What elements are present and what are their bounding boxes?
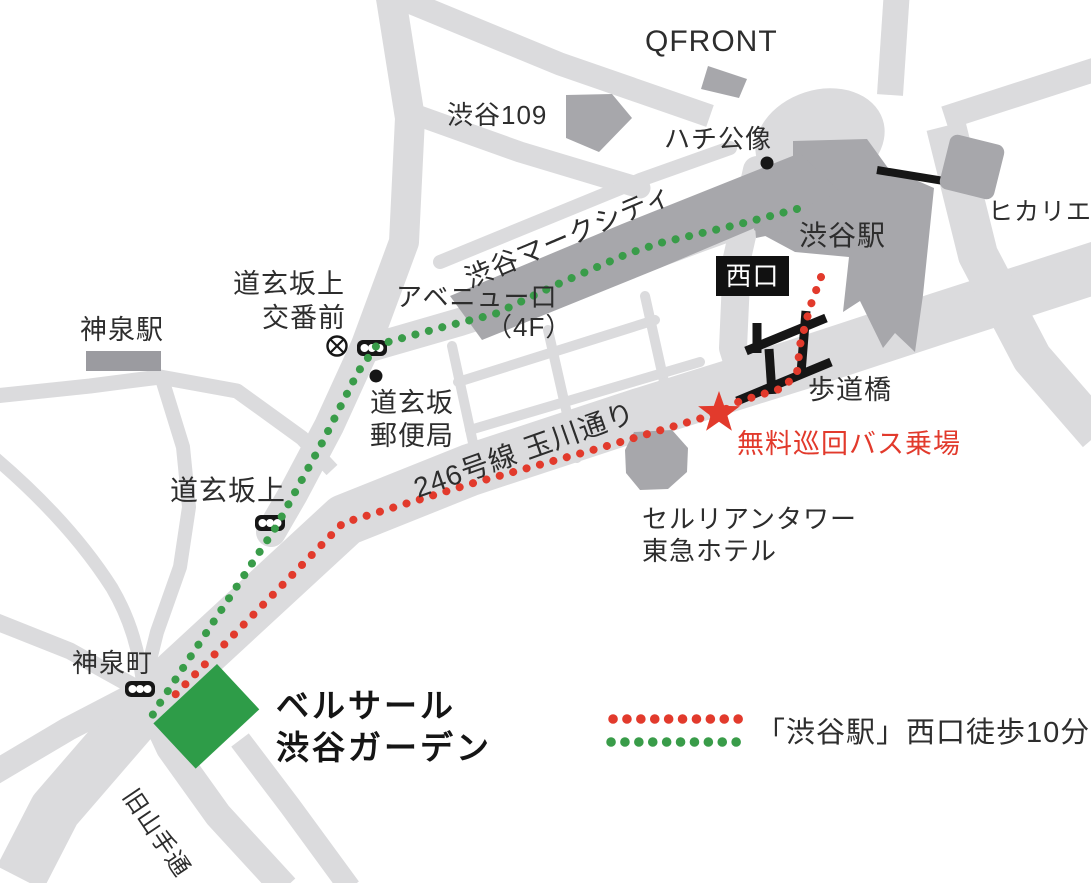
label-qfront: QFRONT: [645, 25, 778, 58]
qfront-building: [701, 66, 747, 98]
label-shinsen-station: 神泉駅: [80, 315, 164, 345]
label-shibuya109: 渋谷109: [447, 100, 547, 130]
access-map: 西口 QFRONT 渋谷109 ハチ公像 渋谷マークシティ 渋谷駅 ヒカリエ 道…: [0, 0, 1091, 883]
map-canvas: 西口 QFRONT 渋谷109 ハチ公像 渋谷マークシティ 渋谷駅 ヒカリエ 道…: [0, 0, 1091, 883]
label-avenue-exit-line2: （4F）: [486, 312, 572, 342]
west-exit-badge-label: 西口: [725, 261, 779, 291]
label-shibuya-station: 渋谷駅: [799, 220, 886, 251]
hachiko-statue-dot: [761, 157, 774, 170]
traffic-light-icon: [357, 340, 387, 356]
label-footbridge: 歩道橋: [808, 375, 892, 405]
road-northeast: [945, 68, 1091, 118]
legend: 「渋谷駅」西口徒歩10分: [611, 716, 1090, 749]
shibuya109-building: [566, 94, 632, 152]
label-shinsencho: 神泉町: [72, 648, 153, 678]
shinsen-station-platform: [86, 351, 161, 371]
label-post-office-line2: 郵便局: [370, 421, 454, 451]
koban-icon: [328, 337, 347, 356]
traffic-light-icon: [125, 681, 155, 697]
label-cerulean-line1: セルリアンタワー: [642, 504, 857, 534]
label-post-office-line1: 道玄坂: [370, 388, 454, 418]
label-venue-line1: ベルサール: [276, 687, 456, 724]
road-north: [890, 0, 897, 95]
label-venue-line2: 渋谷ガーデン: [276, 729, 492, 766]
road-top-diagonal: [385, 0, 710, 116]
label-koban-line2: 交番前: [262, 303, 346, 333]
label-kyu-yamate-dori: 旧山手通: [117, 784, 195, 882]
label-dogenzaka-ue: 道玄坂上: [170, 475, 286, 506]
label-cerulean-line2: 東急ホテル: [642, 536, 777, 566]
legend-walk-label: 「渋谷駅」西口徒歩10分: [756, 716, 1090, 749]
label-avenue-exit-line1: アベニュー口: [396, 282, 557, 312]
label-hachiko-statue: ハチ公像: [664, 124, 772, 154]
label-koban-line1: 道玄坂上: [233, 269, 345, 299]
label-free-bus-stop: 無料巡回バス乗場: [737, 429, 961, 459]
west-exit-badge: 西口: [716, 256, 789, 296]
label-hikarie: ヒカリエ: [988, 198, 1091, 226]
post-office-dot: [370, 370, 383, 383]
